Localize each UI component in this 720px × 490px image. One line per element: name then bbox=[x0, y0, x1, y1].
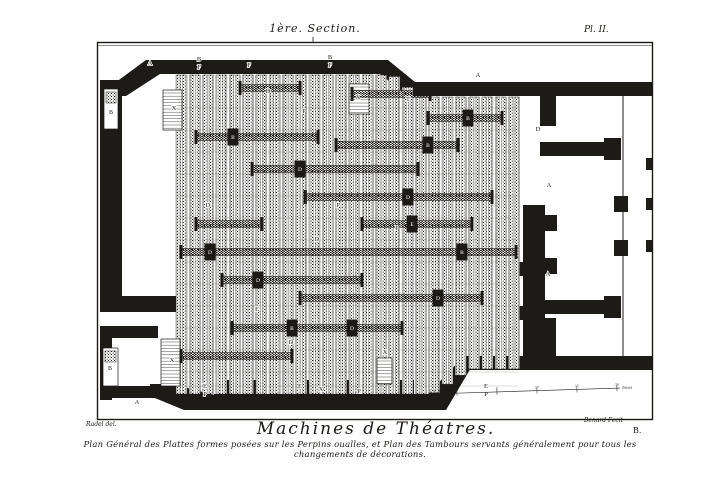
svg-text:D: D bbox=[206, 202, 211, 209]
drum-block: B bbox=[423, 137, 433, 153]
svg-text:P: P bbox=[357, 388, 361, 395]
svg-text:X: X bbox=[356, 94, 361, 101]
svg-text:D: D bbox=[436, 296, 440, 302]
svg-text:B: B bbox=[231, 135, 235, 141]
svg-text:10: 10 bbox=[535, 385, 539, 389]
svg-text:E: E bbox=[484, 383, 488, 390]
svg-text:B: B bbox=[109, 110, 113, 116]
svg-text:D: D bbox=[298, 167, 302, 173]
draftsman-credit: Radel del. bbox=[86, 421, 117, 428]
svg-text:F: F bbox=[197, 64, 201, 71]
svg-text:X: X bbox=[319, 386, 324, 393]
drum-block: D bbox=[205, 244, 215, 260]
engraver-credit: Benard Fecit bbox=[584, 417, 623, 424]
drum-block: E bbox=[407, 216, 417, 232]
svg-text:E: E bbox=[298, 383, 302, 390]
svg-text:X: X bbox=[172, 105, 177, 112]
svg-text:P: P bbox=[395, 225, 399, 232]
svg-text:A: A bbox=[546, 271, 551, 278]
svg-text:Toises: Toises bbox=[622, 385, 633, 390]
svg-text:X: X bbox=[170, 357, 175, 364]
drum-block: D bbox=[347, 320, 357, 336]
drum-block: B bbox=[228, 129, 238, 145]
svg-text:B: B bbox=[197, 56, 202, 63]
engraved-plate-page: { "plate": { "section_label": "1ère. Sec… bbox=[0, 0, 720, 490]
svg-text:5: 5 bbox=[496, 386, 498, 390]
svg-text:P: P bbox=[336, 202, 340, 209]
svg-text:A: A bbox=[476, 72, 481, 79]
svg-text:P: P bbox=[203, 391, 207, 398]
plate-title: Machines de Théatres. bbox=[98, 419, 654, 439]
svg-text:D: D bbox=[256, 278, 260, 284]
plate-caption: Plan Général des Plattes formes posées s… bbox=[60, 440, 660, 460]
svg-text:D: D bbox=[350, 326, 354, 332]
svg-text:B: B bbox=[108, 366, 112, 372]
svg-text:D: D bbox=[266, 88, 271, 95]
svg-text:A: A bbox=[547, 182, 552, 189]
svg-text:B: B bbox=[426, 143, 430, 149]
drum-block: D bbox=[295, 161, 305, 177]
svg-text:F: F bbox=[247, 62, 251, 69]
svg-text:T: T bbox=[406, 96, 410, 103]
svg-text:D: D bbox=[289, 339, 294, 346]
plate-number: Pl. II. bbox=[584, 25, 609, 35]
svg-text:D: D bbox=[315, 236, 320, 243]
svg-text:D: D bbox=[536, 126, 541, 133]
svg-text:B: B bbox=[460, 250, 464, 256]
drum-block: B bbox=[463, 110, 473, 126]
drum-block: B bbox=[287, 320, 297, 336]
svg-text:X: X bbox=[383, 349, 388, 356]
svg-text:P: P bbox=[302, 108, 306, 115]
gathering-mark: B. bbox=[633, 426, 641, 435]
svg-text:A: A bbox=[135, 399, 140, 406]
section-label: 1ère. Section. bbox=[250, 22, 380, 35]
drum-block: D bbox=[253, 272, 263, 288]
svg-text:D: D bbox=[208, 250, 212, 256]
svg-text:15: 15 bbox=[575, 384, 579, 388]
drum-block: D bbox=[403, 189, 413, 205]
svg-text:D: D bbox=[406, 195, 410, 201]
svg-text:B: B bbox=[290, 326, 294, 332]
svg-text:E: E bbox=[203, 383, 207, 390]
svg-text:F: F bbox=[328, 62, 332, 69]
svg-text:E: E bbox=[255, 306, 259, 313]
svg-text:B: B bbox=[328, 54, 333, 61]
svg-text:20: 20 bbox=[615, 383, 619, 387]
svg-text:B: B bbox=[466, 116, 470, 122]
drum-block: D bbox=[433, 290, 443, 306]
drum-block: B bbox=[457, 244, 467, 260]
svg-text:A: A bbox=[148, 60, 153, 67]
